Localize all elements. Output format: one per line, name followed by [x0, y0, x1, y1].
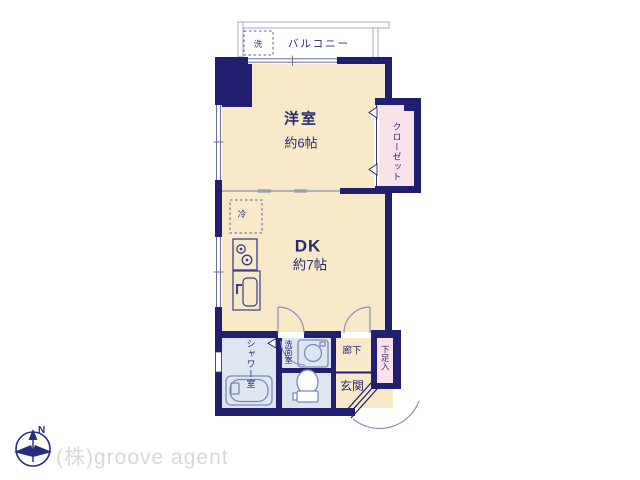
western-room-label: 洋室	[284, 112, 318, 127]
washroom-label: 洗面室	[284, 340, 292, 364]
entrance-label: 玄関	[340, 380, 364, 392]
hallway-label: 廊下	[342, 346, 361, 356]
balcony-label: バルコニー	[288, 39, 350, 50]
dk-label: DK	[295, 238, 322, 255]
dk-size: 約7帖	[293, 258, 328, 272]
compass-north-label: N	[38, 425, 45, 436]
north-compass-icon: N	[14, 425, 52, 466]
floor-plan: N バルコニー 洗 洋室 約6帖 クローゼット DK 約7帖 冷 シャワー室 洗…	[0, 0, 640, 480]
closet-label: クローゼット	[392, 122, 401, 182]
shower-room-label: シャワー室	[246, 339, 255, 389]
fridge-label: 冷	[238, 210, 247, 219]
watermark: (株)groove agent	[56, 441, 229, 471]
western-room-size: 約6帖	[284, 137, 317, 150]
shoe-box-label: 下足入	[381, 345, 390, 371]
balcony-washer-label: 洗	[254, 40, 263, 49]
